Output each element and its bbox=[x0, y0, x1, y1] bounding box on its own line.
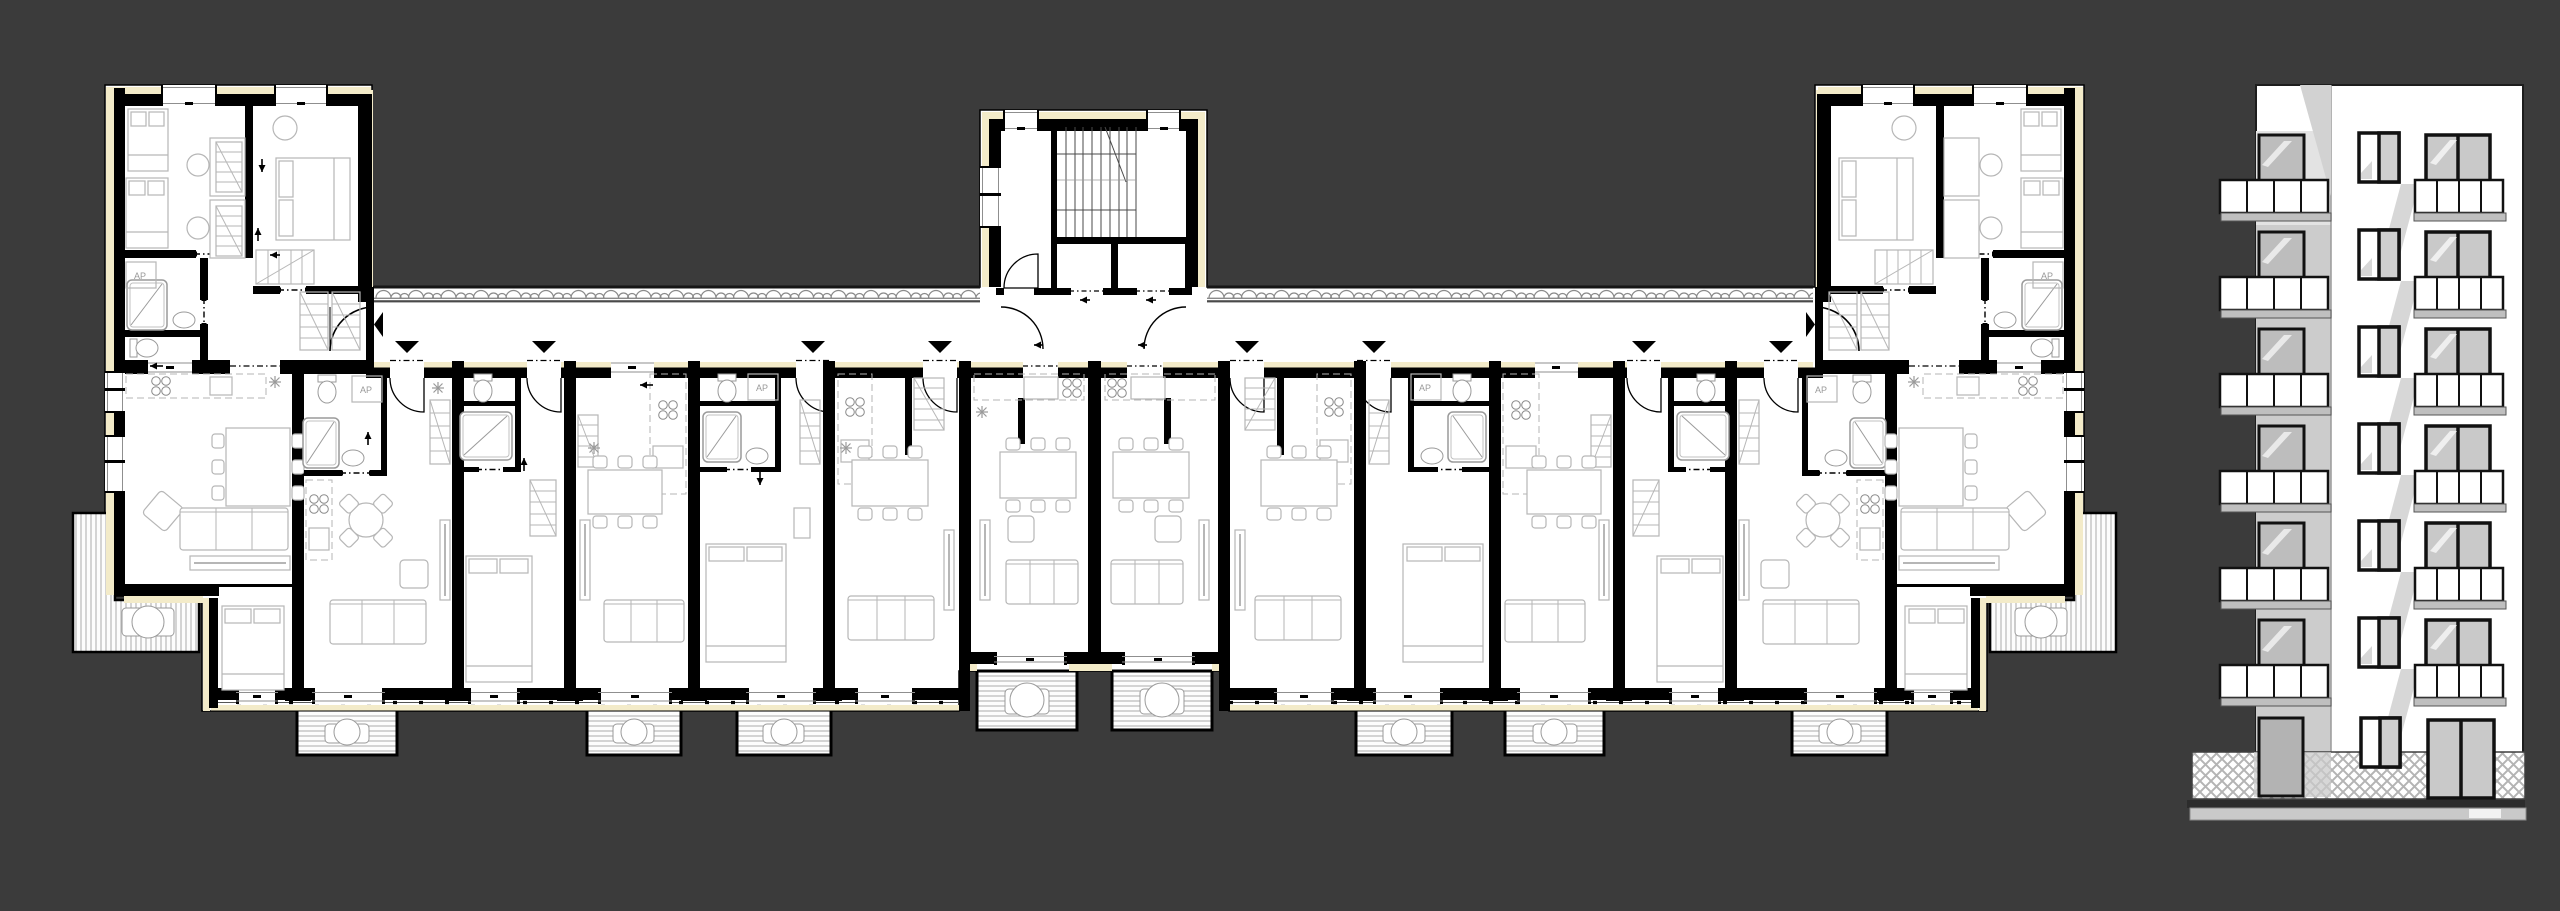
svg-text:AP: AP bbox=[2041, 271, 2053, 281]
svg-text:AP: AP bbox=[360, 385, 372, 395]
svg-text:AP: AP bbox=[756, 383, 768, 393]
svg-text:AP: AP bbox=[1815, 385, 1827, 395]
svg-text:AP: AP bbox=[1419, 383, 1431, 393]
svg-text:AP: AP bbox=[134, 271, 146, 281]
